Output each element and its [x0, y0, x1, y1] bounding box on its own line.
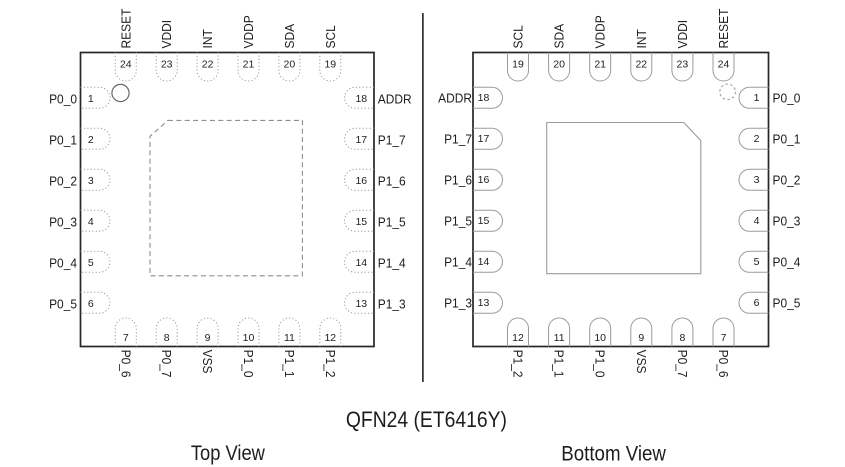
svg-text:P0_3: P0_3 [773, 214, 801, 229]
svg-text:14: 14 [478, 256, 490, 268]
svg-text:SDA: SDA [552, 24, 567, 49]
svg-text:P1_5: P1_5 [378, 215, 406, 230]
svg-text:P1_7: P1_7 [378, 133, 406, 148]
svg-text:5: 5 [754, 256, 760, 268]
svg-text:8: 8 [164, 332, 170, 344]
svg-text:Bottom View: Bottom View [561, 442, 666, 465]
svg-text:QFN24 (ET6416Y): QFN24 (ET6416Y) [346, 407, 507, 432]
svg-text:P1_1: P1_1 [282, 350, 297, 378]
svg-text:21: 21 [594, 59, 606, 71]
svg-text:13: 13 [478, 297, 490, 309]
svg-text:P1_0: P1_0 [593, 350, 608, 378]
svg-text:16: 16 [355, 175, 367, 187]
svg-text:INT: INT [200, 29, 215, 48]
svg-text:P1_5: P1_5 [444, 214, 472, 229]
svg-text:RESET: RESET [716, 9, 731, 49]
svg-text:3: 3 [754, 174, 760, 186]
svg-text:6: 6 [754, 297, 760, 309]
svg-text:23: 23 [677, 59, 689, 71]
svg-text:P0_6: P0_6 [118, 350, 133, 378]
svg-text:VSS: VSS [200, 350, 215, 374]
svg-text:VDDI: VDDI [159, 20, 174, 49]
svg-text:17: 17 [355, 134, 367, 146]
svg-text:7: 7 [721, 332, 727, 344]
svg-text:P0_5: P0_5 [773, 296, 801, 311]
svg-text:12: 12 [324, 332, 336, 344]
svg-text:9: 9 [638, 332, 644, 344]
svg-text:3: 3 [88, 175, 94, 187]
svg-text:P0_0: P0_0 [49, 92, 77, 107]
svg-text:21: 21 [243, 59, 255, 71]
svg-text:P1_2: P1_2 [511, 350, 526, 378]
svg-text:1: 1 [754, 92, 760, 104]
svg-text:10: 10 [594, 332, 606, 344]
svg-text:P1_0: P1_0 [241, 350, 256, 378]
svg-text:P0_2: P0_2 [773, 173, 801, 188]
svg-text:SDA: SDA [282, 24, 297, 49]
svg-text:23: 23 [161, 59, 173, 71]
svg-text:15: 15 [478, 215, 490, 227]
svg-text:4: 4 [88, 216, 94, 228]
svg-text:VSS: VSS [634, 350, 649, 374]
svg-text:22: 22 [202, 59, 214, 71]
svg-text:P1_3: P1_3 [444, 296, 472, 311]
svg-text:20: 20 [284, 59, 296, 71]
svg-text:1: 1 [88, 93, 94, 105]
svg-text:P0_4: P0_4 [773, 255, 801, 270]
svg-text:24: 24 [120, 59, 132, 71]
svg-text:RESET: RESET [118, 9, 133, 49]
svg-text:P0_2: P0_2 [49, 174, 77, 189]
svg-text:5: 5 [88, 257, 94, 269]
svg-text:ADDR: ADDR [378, 92, 412, 107]
svg-text:16: 16 [478, 174, 490, 186]
svg-text:4: 4 [754, 215, 760, 227]
svg-text:P0_7: P0_7 [675, 350, 690, 378]
svg-text:VDDI: VDDI [675, 20, 690, 49]
svg-text:2: 2 [754, 133, 760, 145]
svg-text:10: 10 [243, 332, 255, 344]
svg-text:P0_3: P0_3 [49, 215, 77, 230]
svg-text:12: 12 [512, 332, 524, 344]
svg-text:P1_4: P1_4 [444, 255, 472, 270]
svg-text:19: 19 [324, 59, 336, 71]
svg-text:7: 7 [123, 332, 129, 344]
svg-text:P1_3: P1_3 [378, 297, 406, 312]
svg-text:P1_6: P1_6 [378, 174, 406, 189]
svg-text:SCL: SCL [511, 25, 526, 48]
svg-text:P0_7: P0_7 [159, 350, 174, 378]
svg-text:22: 22 [635, 59, 647, 71]
svg-text:14: 14 [355, 257, 367, 269]
svg-text:20: 20 [553, 59, 565, 71]
svg-text:6: 6 [88, 298, 94, 310]
svg-text:SCL: SCL [323, 25, 338, 48]
svg-text:11: 11 [284, 332, 295, 344]
svg-text:13: 13 [355, 298, 367, 310]
svg-text:2: 2 [88, 134, 94, 146]
svg-text:INT: INT [634, 29, 649, 48]
svg-text:P0_5: P0_5 [49, 297, 77, 312]
svg-text:24: 24 [718, 59, 730, 71]
svg-text:8: 8 [679, 332, 685, 344]
svg-text:19: 19 [512, 59, 524, 71]
svg-text:18: 18 [355, 93, 367, 105]
svg-text:18: 18 [478, 92, 490, 104]
svg-text:P1_7: P1_7 [444, 132, 472, 147]
svg-text:Top View: Top View [191, 442, 266, 465]
svg-text:VDDP: VDDP [241, 15, 256, 48]
svg-text:15: 15 [355, 216, 367, 228]
svg-text:9: 9 [205, 332, 211, 344]
svg-text:ADDR: ADDR [438, 91, 472, 106]
svg-text:P0_1: P0_1 [49, 133, 77, 148]
svg-text:P0_6: P0_6 [716, 350, 731, 378]
svg-text:P1_4: P1_4 [378, 256, 406, 271]
svg-text:P1_2: P1_2 [323, 350, 338, 378]
svg-text:11: 11 [554, 332, 565, 344]
svg-text:P1_6: P1_6 [444, 173, 472, 188]
svg-text:P1_1: P1_1 [552, 350, 567, 378]
svg-text:P0_1: P0_1 [773, 132, 801, 147]
svg-text:P0_4: P0_4 [49, 256, 77, 271]
svg-text:P0_0: P0_0 [773, 91, 801, 106]
svg-text:VDDP: VDDP [593, 15, 608, 48]
svg-text:17: 17 [478, 133, 490, 145]
